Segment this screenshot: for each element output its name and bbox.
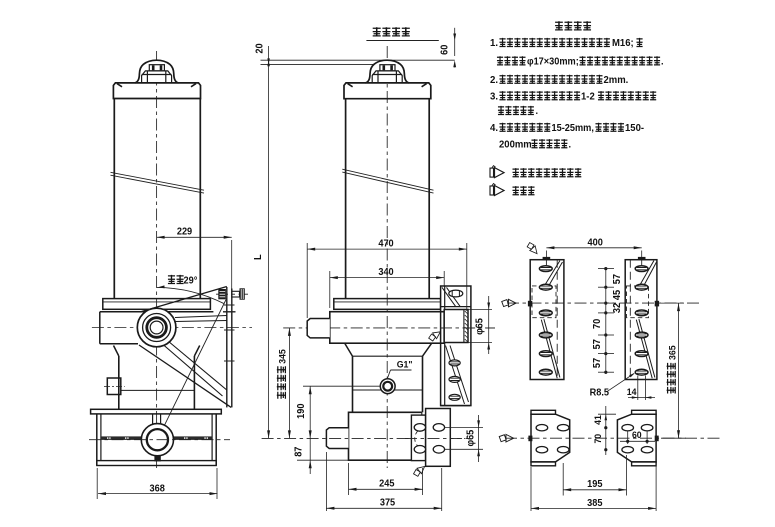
svg-text:15-25mm,: 15-25mm,	[552, 123, 595, 134]
svg-text:245: 245	[379, 478, 395, 489]
svg-text:57: 57	[612, 274, 623, 284]
svg-text:87: 87	[293, 447, 304, 457]
svg-text:1-2: 1-2	[581, 91, 595, 102]
svg-text:60: 60	[439, 45, 450, 55]
svg-text:340: 340	[378, 266, 393, 277]
svg-text:29°: 29°	[184, 275, 198, 286]
svg-text:345: 345	[277, 349, 287, 364]
svg-text:150-: 150-	[625, 123, 644, 134]
svg-text:φ65: φ65	[474, 317, 485, 334]
svg-text:195: 195	[587, 479, 603, 490]
svg-text:2.: 2.	[490, 75, 498, 86]
svg-text:L: L	[252, 254, 263, 260]
svg-text:1.: 1.	[490, 38, 498, 49]
svg-text:41: 41	[593, 415, 603, 425]
svg-text:45: 45	[612, 289, 623, 300]
svg-text:32: 32	[612, 303, 623, 313]
svg-text:20: 20	[254, 43, 265, 53]
svg-text:70: 70	[592, 319, 603, 329]
svg-text:70: 70	[593, 434, 603, 444]
svg-text:470: 470	[378, 238, 393, 249]
svg-text:385: 385	[587, 497, 603, 508]
svg-text:3.: 3.	[490, 91, 498, 102]
svg-text:365: 365	[667, 345, 677, 360]
svg-text:229: 229	[177, 226, 192, 237]
svg-text:400: 400	[588, 237, 603, 248]
svg-text:57: 57	[592, 358, 603, 368]
svg-text:368: 368	[150, 483, 166, 494]
svg-text:60: 60	[632, 430, 642, 440]
svg-text:φ17×30mm;: φ17×30mm;	[527, 56, 579, 67]
svg-text:4.: 4.	[490, 123, 498, 134]
svg-text:φ65: φ65	[465, 429, 476, 446]
svg-text:57: 57	[592, 339, 603, 349]
svg-text:14: 14	[627, 386, 638, 396]
svg-text:M16;: M16;	[612, 38, 634, 49]
svg-text:190: 190	[296, 404, 307, 419]
svg-text:.: .	[536, 106, 539, 117]
svg-text:R8.5: R8.5	[590, 387, 610, 398]
svg-text:.: .	[569, 139, 572, 150]
svg-text:G1": G1"	[397, 359, 413, 369]
svg-text:.: .	[661, 56, 664, 67]
svg-text:200mm: 200mm	[499, 139, 532, 150]
svg-text:2mm.: 2mm.	[604, 75, 629, 86]
svg-text:375: 375	[380, 497, 396, 508]
